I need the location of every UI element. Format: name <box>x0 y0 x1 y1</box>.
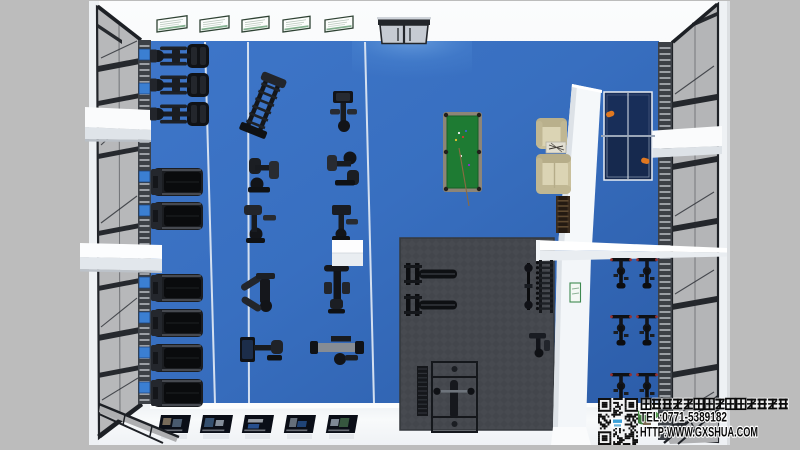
svg-text:HTTP:WWW.GXSHUA.COM: HTTP:WWW.GXSHUA.COM <box>640 424 758 440</box>
svg-text:TEL:0771-5389182: TEL:0771-5389182 <box>640 409 727 425</box>
